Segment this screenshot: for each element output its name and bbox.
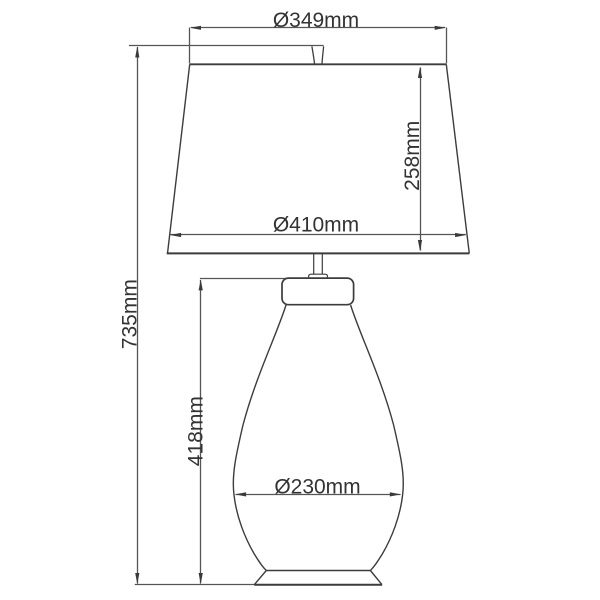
svg-text:Ø410mm: Ø410mm <box>273 213 359 236</box>
svg-text:Ø349mm: Ø349mm <box>273 9 359 32</box>
svg-text:258mm: 258mm <box>401 121 424 191</box>
svg-text:418mm: 418mm <box>184 396 207 466</box>
svg-text:Ø230mm: Ø230mm <box>274 476 360 499</box>
svg-text:735mm: 735mm <box>118 279 141 349</box>
